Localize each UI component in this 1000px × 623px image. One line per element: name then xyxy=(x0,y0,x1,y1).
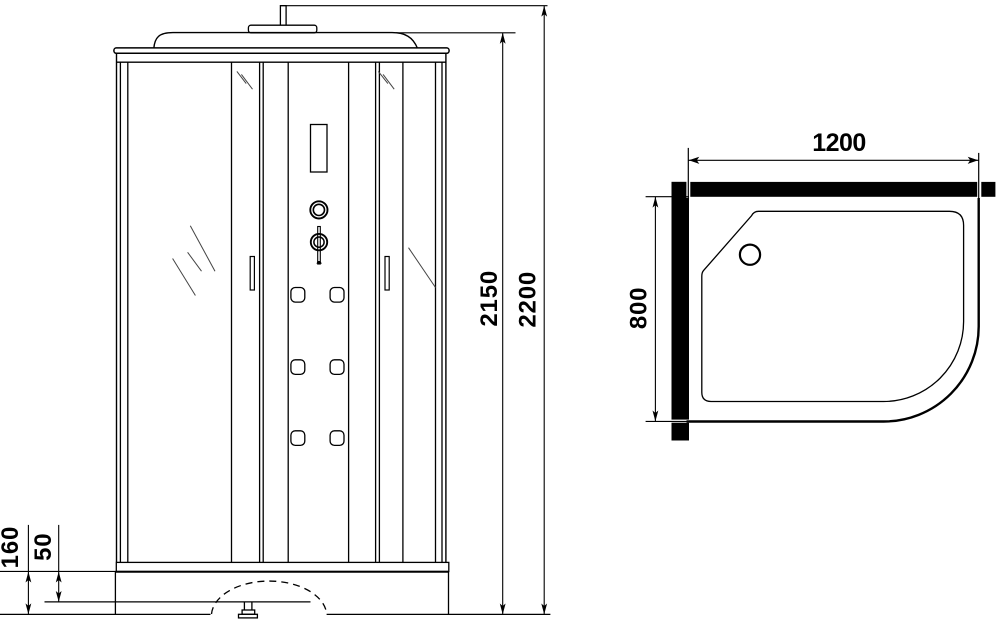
svg-text:2150: 2150 xyxy=(476,270,503,327)
svg-text:160: 160 xyxy=(0,526,24,568)
svg-text:50: 50 xyxy=(30,533,57,561)
svg-text:1200: 1200 xyxy=(812,129,866,157)
svg-text:2200: 2200 xyxy=(515,271,542,328)
svg-text:800: 800 xyxy=(626,287,653,329)
